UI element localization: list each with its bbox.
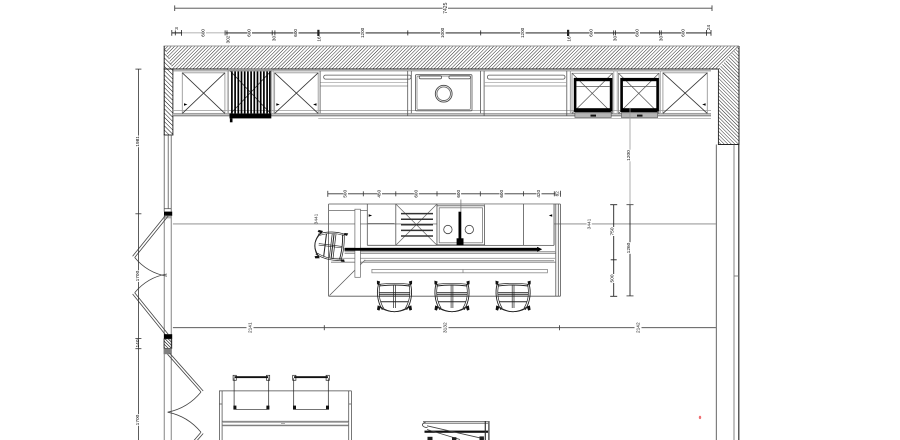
svg-text:450: 450 (377, 190, 382, 198)
svg-text:1200: 1200 (360, 27, 365, 38)
svg-text:600: 600 (293, 29, 298, 37)
svg-text:30: 30 (272, 36, 277, 42)
svg-text:140: 140 (135, 339, 141, 347)
svg-text:420: 420 (536, 190, 541, 198)
svg-text:600: 600 (201, 29, 206, 37)
svg-text:1200: 1200 (626, 150, 632, 161)
svg-text:3: 3 (174, 27, 179, 30)
svg-text:24: 24 (706, 25, 711, 31)
svg-text:500: 500 (609, 274, 615, 282)
svg-text:600: 600 (589, 29, 594, 37)
svg-text:600: 600 (499, 190, 504, 198)
svg-text:7425: 7425 (443, 2, 449, 13)
svg-text:1700: 1700 (135, 414, 141, 425)
svg-text:2141: 2141 (247, 322, 253, 333)
svg-text:3132: 3132 (442, 322, 448, 333)
svg-text:750: 750 (609, 227, 615, 235)
svg-text:30: 30 (659, 36, 664, 42)
svg-text:2142: 2142 (635, 322, 641, 333)
svg-text:1260: 1260 (626, 242, 632, 253)
svg-text:30: 30 (613, 36, 618, 42)
svg-text:500: 500 (343, 190, 348, 198)
svg-text:600: 600 (247, 29, 252, 37)
svg-text:1200: 1200 (520, 27, 525, 38)
svg-text:600: 600 (456, 190, 461, 198)
svg-text:3441: 3441 (586, 218, 592, 229)
svg-text:1000: 1000 (440, 27, 445, 38)
svg-text:82: 82 (555, 191, 560, 197)
svg-text:600: 600 (681, 29, 686, 37)
svg-text:16: 16 (567, 36, 572, 42)
svg-text:1700: 1700 (135, 270, 141, 281)
svg-text:16: 16 (317, 36, 322, 42)
svg-text:302: 302 (226, 35, 231, 43)
svg-text:600: 600 (414, 190, 419, 198)
svg-text:3441: 3441 (314, 213, 320, 224)
svg-text:1981: 1981 (135, 136, 141, 147)
svg-text:600: 600 (635, 29, 640, 37)
